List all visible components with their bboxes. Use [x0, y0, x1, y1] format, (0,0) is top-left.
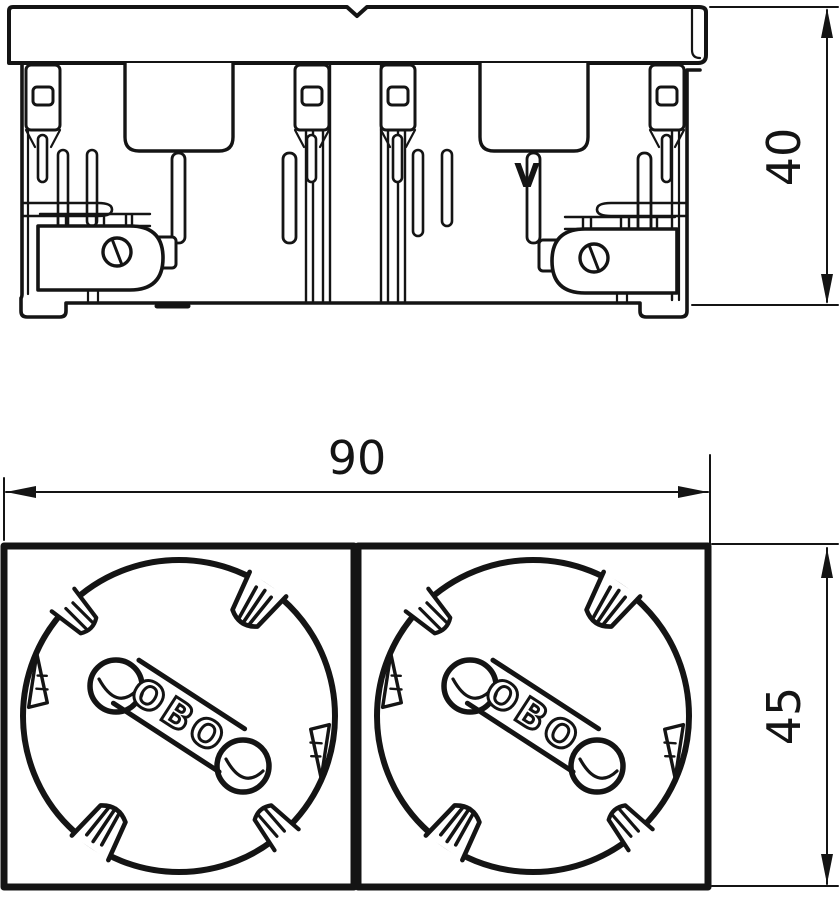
dimension-label-45: 45: [757, 687, 811, 746]
arrowhead-up: [821, 548, 833, 578]
dimension-45: 45: [712, 544, 838, 886]
front-view: OBO OBO 90 45: [4, 431, 838, 887]
dimension-90: 90: [4, 431, 710, 552]
side-view: V 40: [9, 7, 838, 317]
drawing-canvas: V 40 OBO: [0, 0, 840, 904]
arrowhead-up: [821, 8, 833, 38]
dimension-label-40: 40: [757, 128, 811, 187]
dimension-label-90: 90: [328, 431, 387, 485]
arrowhead-down: [821, 854, 833, 884]
cover-plate: [9, 7, 706, 63]
voltage-marking: V: [514, 156, 540, 195]
dimension-40: 40: [692, 7, 838, 305]
arrowhead-left: [6, 486, 36, 498]
arrowhead-right: [678, 486, 708, 498]
arrowhead-down: [821, 274, 833, 304]
technical-drawing: V 40 OBO: [0, 0, 840, 904]
